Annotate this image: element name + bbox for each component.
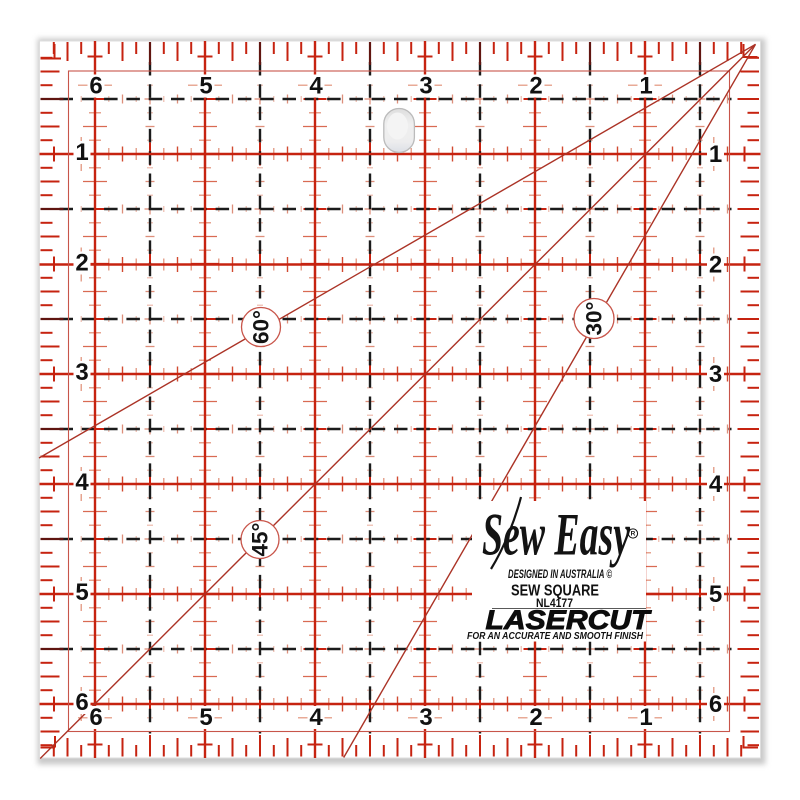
svg-text:Sew Easy: Sew Easy <box>482 502 630 568</box>
svg-text:5: 5 <box>199 73 212 100</box>
svg-text:30°: 30° <box>582 301 607 335</box>
svg-text:1: 1 <box>709 141 722 168</box>
svg-text:4: 4 <box>709 471 723 498</box>
svg-text:45°: 45° <box>248 522 273 556</box>
svg-text:R: R <box>631 531 636 538</box>
svg-text:SEW SQUARE: SEW SQUARE <box>511 583 599 600</box>
svg-text:3: 3 <box>75 359 88 386</box>
svg-text:2: 2 <box>709 252 722 279</box>
svg-text:6: 6 <box>89 73 102 100</box>
svg-text:5: 5 <box>75 579 88 606</box>
svg-text:3: 3 <box>419 73 432 100</box>
svg-text:5: 5 <box>709 581 722 608</box>
svg-text:1: 1 <box>639 704 652 731</box>
svg-text:FOR AN ACCURATE AND SMOOTH FIN: FOR AN ACCURATE AND SMOOTH FINISH <box>467 630 643 642</box>
svg-text:1: 1 <box>639 73 652 100</box>
svg-text:3: 3 <box>709 361 722 388</box>
svg-text:6: 6 <box>89 704 102 731</box>
svg-text:2: 2 <box>529 73 542 100</box>
svg-text:60°: 60° <box>249 310 274 344</box>
svg-text:DESIGNED IN AUSTRALIA ©: DESIGNED IN AUSTRALIA © <box>508 569 612 581</box>
svg-text:4: 4 <box>309 704 323 731</box>
svg-text:4: 4 <box>309 73 323 100</box>
svg-text:6: 6 <box>709 691 722 718</box>
svg-text:1: 1 <box>75 139 88 166</box>
svg-text:2: 2 <box>529 704 542 731</box>
svg-text:3: 3 <box>419 704 432 731</box>
svg-text:6: 6 <box>75 689 88 716</box>
svg-text:5: 5 <box>199 704 212 731</box>
svg-text:4: 4 <box>75 469 89 496</box>
svg-text:2: 2 <box>75 250 88 277</box>
